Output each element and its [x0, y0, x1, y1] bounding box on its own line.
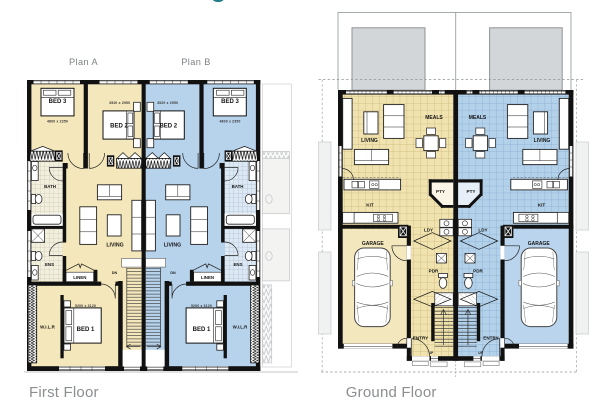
svg-text:MEALS: MEALS [425, 115, 443, 121]
svg-text:W.I.L.R: W.I.L.R [233, 325, 248, 330]
svg-text:3520 x 2950: 3520 x 2950 [109, 101, 130, 105]
svg-text:DN: DN [112, 271, 118, 275]
svg-text:Plan A: Plan A [69, 57, 98, 67]
svg-text:BED 2: BED 2 [110, 123, 128, 129]
svg-text:LDY: LDY [478, 228, 487, 233]
svg-text:5200 x 3120: 5200 x 3120 [191, 304, 212, 308]
svg-text:4800 x 2350: 4800 x 2350 [47, 120, 68, 124]
svg-text:BED 3: BED 3 [221, 99, 239, 105]
svg-text:BED 1: BED 1 [77, 327, 95, 333]
svg-text:LIVING: LIVING [534, 138, 551, 144]
svg-text:LIVING: LIVING [361, 138, 378, 144]
svg-text:Ground Floor: Ground Floor [346, 384, 437, 400]
svg-text:DN: DN [170, 271, 176, 275]
svg-text:ENS: ENS [45, 262, 54, 267]
svg-text:W.I.L.R: W.I.L.R [40, 325, 55, 330]
svg-text:MEALS: MEALS [469, 115, 487, 121]
svg-text:3520 x 2950: 3520 x 2950 [157, 101, 178, 105]
svg-text:PDR: PDR [429, 269, 439, 274]
svg-text:LIVING: LIVING [106, 242, 123, 248]
svg-text:BATH: BATH [44, 184, 56, 189]
svg-text:BED 1: BED 1 [193, 327, 211, 333]
svg-text:LINEN: LINEN [201, 275, 214, 280]
svg-text:ENTRY: ENTRY [413, 336, 428, 341]
svg-text:GARAGE: GARAGE [362, 241, 385, 247]
svg-text:GARAGE: GARAGE [528, 241, 551, 247]
svg-text:LIVING: LIVING [164, 242, 181, 248]
svg-text:ENS: ENS [233, 262, 242, 267]
svg-text:KIT: KIT [538, 203, 546, 208]
svg-text:Plan B: Plan B [181, 57, 210, 67]
svg-text:5200 x 3120: 5200 x 3120 [75, 304, 96, 308]
svg-text:PTY: PTY [436, 189, 445, 194]
svg-text:BED 2: BED 2 [159, 123, 177, 129]
svg-text:KIT: KIT [366, 203, 374, 208]
svg-text:LDY: LDY [424, 228, 433, 233]
svg-text:First Floor: First Floor [29, 384, 99, 400]
svg-text:ENTRY: ENTRY [483, 336, 498, 341]
svg-text:PTY: PTY [467, 189, 476, 194]
svg-text:BATH: BATH [232, 184, 244, 189]
svg-text:BED 3: BED 3 [49, 99, 67, 105]
svg-text:PDR: PDR [473, 269, 483, 274]
svg-text:LINEN: LINEN [73, 275, 86, 280]
svg-text:4800 x 2350: 4800 x 2350 [219, 120, 240, 124]
